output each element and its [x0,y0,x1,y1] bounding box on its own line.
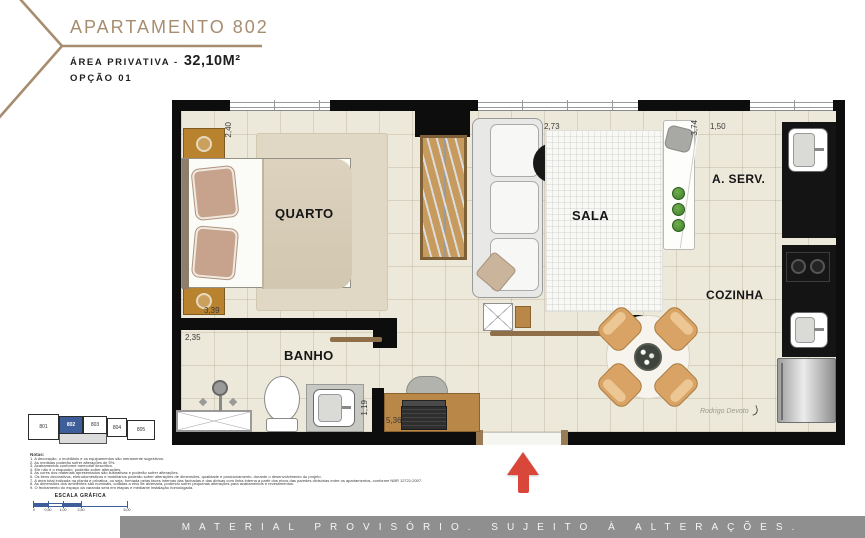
private-area: ÁREA PRIVATIVA - 32,10M² [70,53,241,69]
shower-tray [176,410,252,432]
plant-icon [672,187,685,200]
area-value: 32,10M² [184,53,241,69]
faucet-icon [814,328,824,331]
sofa-cushion [490,124,539,177]
laptop-screen [402,400,446,407]
laundry-counter [782,122,836,238]
bed-blanket [262,159,352,289]
centerpiece [634,343,662,371]
page-title: APARTAMENTO 802 [70,17,269,38]
dim-hall-height: 1,19 [360,400,369,416]
keyplan-corridor [59,434,107,444]
room-label-sala: SALA [572,208,609,223]
sink-basin [795,317,815,343]
faucet-icon [342,406,351,409]
dim-sala-height: 3,74 [690,120,699,136]
graphic-scale: ESCALA GRÁFICA 0 0,50 1,00 2,50 5,00 [33,493,143,513]
notes-block: Notas: 1. A decoração, o mobiliário e os… [30,452,590,489]
keyplan-unit-801: 801 [28,414,59,440]
wall-left [172,100,181,445]
area-label: ÁREA PRIVATIVA - [70,57,179,69]
window-quarto [230,100,330,111]
designer-signature: Rodrigo Devoto [700,406,758,415]
wall-bottom [172,432,476,445]
floor-plan: QUARTO SALA A. SERV. COZINHA BANHO 2,40 … [172,100,845,445]
shower-stem [219,396,222,411]
footer-disclaimer-bar: MATERIAL PROVISÓRIO. SUJEITO À ALTERAÇÕE… [120,516,865,538]
scale-tick-label: 0 [33,508,35,512]
fridge-handle [781,363,783,420]
bathroom-vanity [306,384,364,432]
dim-desk-width: 5,36 [386,416,402,425]
dim-banho-width: 2,35 [185,333,201,342]
bed-headboard [182,159,189,289]
sink-basin [793,133,815,167]
wall-top [638,100,750,111]
keyplan-unit-805: 805 [127,420,155,440]
scale-tick-label: 1,00 [60,508,67,512]
door-jamb [561,430,568,445]
cooktop [786,252,830,282]
option-label: OPÇÃO 01 [70,73,132,84]
door-banho [330,337,382,342]
wall-bottom [561,432,845,445]
room-label-cozinha: COZINHA [706,288,763,302]
keyplan-unit-803: 803 [83,416,107,434]
room-label-quarto: QUARTO [275,206,334,221]
coffee-table [483,303,513,331]
dim-aserv-width: 1,50 [710,122,726,131]
sofa [472,118,543,298]
bathroom-sink [313,389,355,427]
shower-head-icon [212,380,228,396]
room-label-aserv: A. SERV. [712,172,765,186]
bed-pillow [192,166,239,220]
wall-top [172,100,230,111]
plant-icon [672,219,685,232]
dim-quarto-width: 3,39 [204,306,220,315]
burner-icon [810,259,825,274]
refrigerator [777,358,836,423]
keyplan-unit-802: 802 [59,416,83,434]
signature-logo-icon [749,405,758,416]
keyplan: 801 802 803 804 805 [28,414,156,450]
wall-desk [372,388,384,432]
coffee-table-tray [515,306,531,328]
door-jamb [476,430,483,445]
sink-basin [318,394,342,422]
burner-icon [791,259,806,274]
page: APARTAMENTO 802 ÁREA PRIVATIVA - 32,10M²… [0,0,865,538]
sofa-cushion [490,181,539,234]
note-line: 9. O fechamento do espaço da varanda ser… [30,486,590,490]
bed [181,158,351,288]
scale-tick-label: 0,50 [45,508,52,512]
nightstand [183,128,225,160]
laptop [401,406,447,430]
bed-pillow [192,226,238,279]
desk [384,393,480,432]
dim-sala-width: 2,73 [544,122,560,131]
kitchen-counter [782,245,836,357]
footer-text: MATERIAL PROVISÓRIO. SUJEITO À ALTERAÇÕE… [182,522,804,533]
wall-stub [373,318,397,348]
scale-label: ESCALA GRÁFICA [33,493,128,499]
bar-counter [663,120,695,250]
window-aserv [750,100,833,111]
dim-quarto-height: 2,40 [224,122,233,138]
entry-opening [483,432,561,445]
signature-text: Rodrigo Devoto [700,408,749,415]
laundry-sink [788,128,828,172]
faucet-icon [814,148,824,151]
wall-closet-top [415,100,470,137]
window-sala [478,100,638,111]
wall-right [836,100,845,445]
lamp-icon [196,136,212,152]
scale-tick-label: 5,00 [124,508,131,512]
room-label-banho: BANHO [284,348,334,363]
keyplan-unit-804: 804 [107,418,127,437]
toilet [264,376,300,422]
wall-top [833,100,845,111]
wall-quarto-banho [172,318,377,330]
scale-tick-label: 2,50 [78,508,85,512]
wardrobe [420,135,467,260]
plant-icon [672,203,685,216]
kitchen-sink [790,312,828,348]
toilet-tank [266,418,298,432]
scale-tick-labels: 0 0,50 1,00 2,50 5,00 [33,507,128,513]
